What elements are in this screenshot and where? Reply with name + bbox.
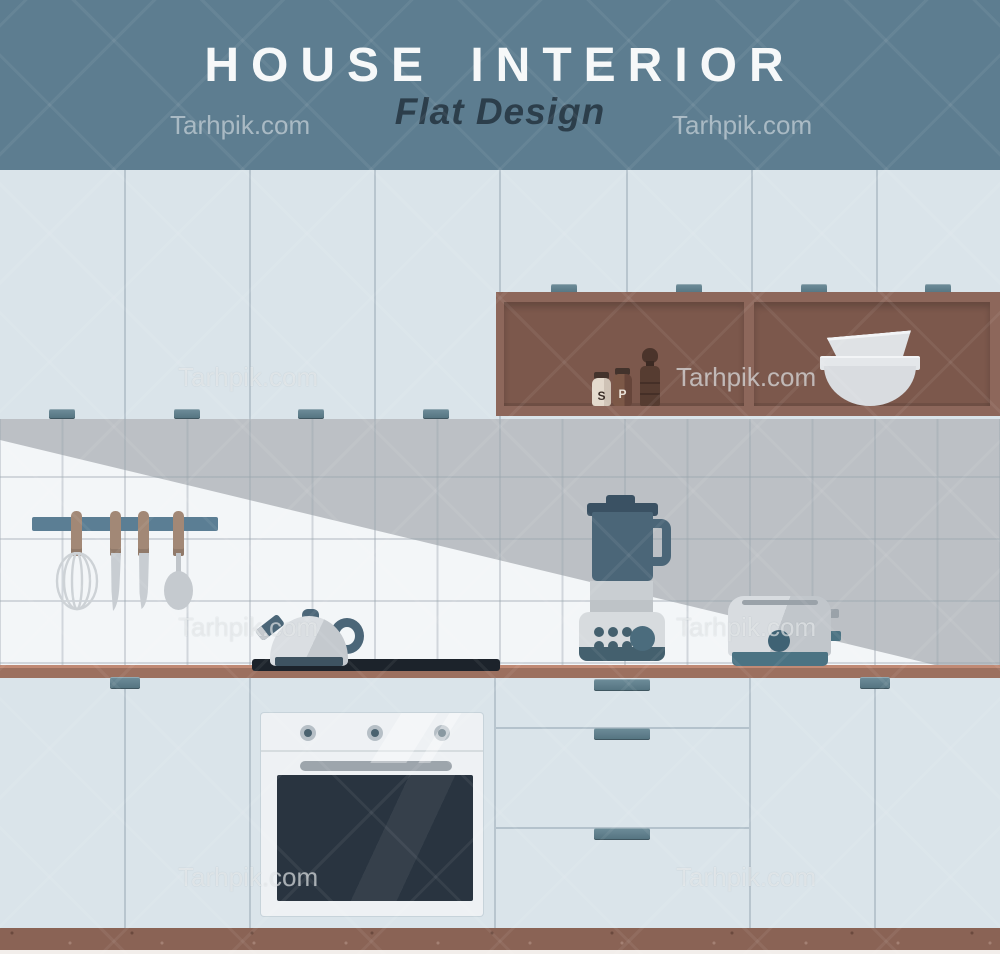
oven-knob — [367, 725, 383, 741]
grinder-band — [640, 382, 660, 384]
poster-title: HOUSE INTERIOR — [0, 42, 1000, 90]
door-handle — [860, 677, 890, 689]
base-foot — [579, 647, 665, 661]
door-handle — [110, 677, 140, 689]
poster-subtitle: Flat Design — [0, 92, 1000, 133]
drawer-handle — [594, 679, 650, 691]
watermark: Tarhpik.com — [676, 862, 816, 893]
watermark: Tarhpik.com — [178, 362, 318, 393]
blender-base — [579, 612, 665, 661]
blender-button — [594, 641, 604, 651]
whisk-handle — [71, 511, 82, 556]
bowl-body — [824, 366, 916, 406]
mixing-bowls — [820, 330, 920, 406]
blender-jug — [592, 512, 653, 581]
door-handle — [49, 409, 75, 419]
floor — [0, 950, 1000, 954]
watermark: Tarhpik.com — [178, 862, 318, 893]
blender-button — [594, 627, 604, 637]
toaster-base — [732, 652, 828, 666]
drawer-handle — [594, 828, 650, 840]
blender-dial — [630, 626, 655, 651]
watermark: Tarhpik.com — [676, 612, 816, 643]
knife-handle — [138, 511, 149, 556]
utensil-rail — [32, 517, 218, 531]
knife-icon — [109, 553, 123, 613]
salt-label: S — [592, 390, 611, 402]
cabinet-door-divider — [374, 170, 376, 419]
cabinet-door-divider — [874, 678, 876, 928]
watermark: Tarhpik.com — [170, 110, 310, 141]
cabinet-door-divider — [876, 170, 878, 294]
spice-shelf — [496, 292, 1000, 416]
pepper-shaker: P — [613, 368, 632, 406]
cabinet-door-divider — [626, 170, 628, 294]
cabinet-door-divider — [494, 678, 496, 928]
oven-knob — [300, 725, 316, 741]
watermark: Tarhpik.com — [178, 612, 318, 643]
blender — [579, 495, 676, 666]
blender-button — [608, 627, 618, 637]
oven-panel-divider — [261, 750, 483, 752]
salt-shaker: S — [592, 372, 611, 406]
spoon-bowl — [164, 571, 193, 610]
pepper-label: P — [613, 388, 632, 400]
drawer-handle — [594, 728, 650, 740]
kettle-base — [275, 657, 343, 666]
grinder-body — [640, 366, 660, 406]
grinder-band — [640, 393, 660, 395]
door-handle — [174, 409, 200, 419]
knife-icon — [137, 553, 151, 611]
blender-button — [608, 641, 618, 651]
kitchen-illustration: HOUSE INTERIOR Flat Design Tarhpik.com T… — [0, 0, 1000, 954]
lower-cabinets — [0, 678, 1000, 928]
watermark: Tarhpik.com — [676, 362, 816, 393]
tile-grid — [0, 419, 1000, 665]
door-handle — [423, 409, 449, 419]
door-handle — [298, 409, 324, 419]
cabinet-door-divider — [124, 170, 126, 419]
cabinet-door-divider — [124, 678, 126, 928]
pepper-grinder — [638, 348, 662, 406]
spoon-handle — [173, 511, 184, 556]
whisk-icon — [53, 552, 101, 612]
kickboard — [0, 928, 1000, 950]
cabinet-door-divider — [751, 170, 753, 294]
toaster-slot — [742, 600, 818, 605]
watermark: Tarhpik.com — [672, 110, 812, 141]
blender-collar — [590, 581, 653, 612]
knife-handle — [110, 511, 121, 556]
